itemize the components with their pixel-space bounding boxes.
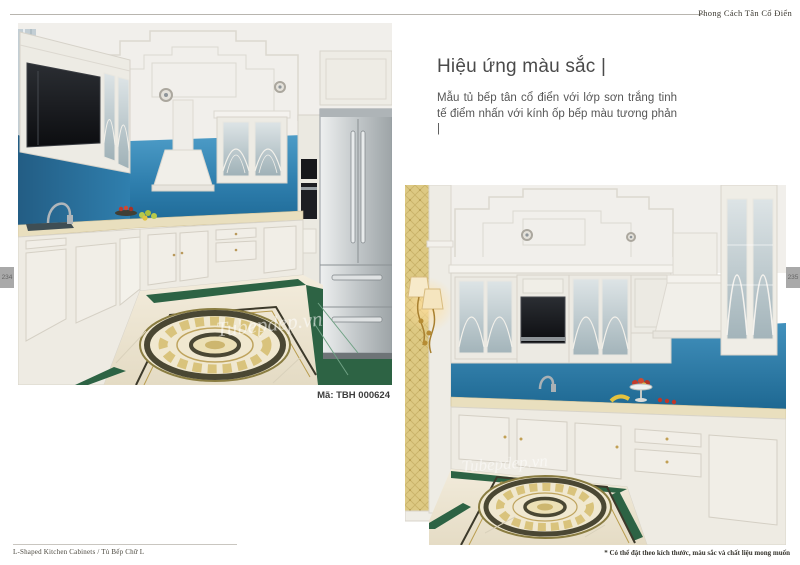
upper-cornice: [449, 265, 675, 273]
kitchen-photo-2: Tubepdep.vn: [405, 185, 786, 545]
floor-medallion: [479, 476, 611, 538]
page-number-left: 234: [2, 274, 13, 281]
kitchen-render-1: Tubepdep.vn: [18, 23, 392, 385]
page-number-right: 235: [788, 274, 799, 281]
header-rule: [10, 14, 704, 15]
tall-glass-cabinet: [721, 185, 777, 355]
footer-right-note: * Có thể đặt theo kích thước, màu sắc và…: [604, 549, 790, 557]
section-text: Hiệu ứng màu sắc | Mẫu tủ bếp tân cổ điể…: [437, 56, 677, 138]
section-heading: Hiệu ứng màu sắc |: [437, 56, 677, 78]
page-number-tab-left: 234: [0, 267, 14, 288]
upper-cabinets: [451, 273, 671, 363]
pilaster: [427, 185, 453, 513]
photo1-code-caption: Mã: TBH 000624: [200, 390, 390, 401]
kitchen-photo-1: Tubepdep.vn: [18, 23, 392, 385]
page-number-tab-right: 235: [786, 267, 800, 288]
kitchen-render-2: Tubepdep.vn: [405, 185, 786, 545]
section-body: Mẫu tủ bếp tân cổ điển với lớp sơn trắng…: [437, 91, 677, 138]
footer-left-label: L-Shaped Kitchen Cabinets / Tủ Bếp Chữ L: [13, 544, 237, 556]
header-title: Phong Cách Tân Cổ Điển: [698, 8, 792, 18]
glass-display-cabinet: [214, 111, 290, 183]
microwave: [521, 297, 565, 343]
refrigerator: [320, 51, 392, 359]
